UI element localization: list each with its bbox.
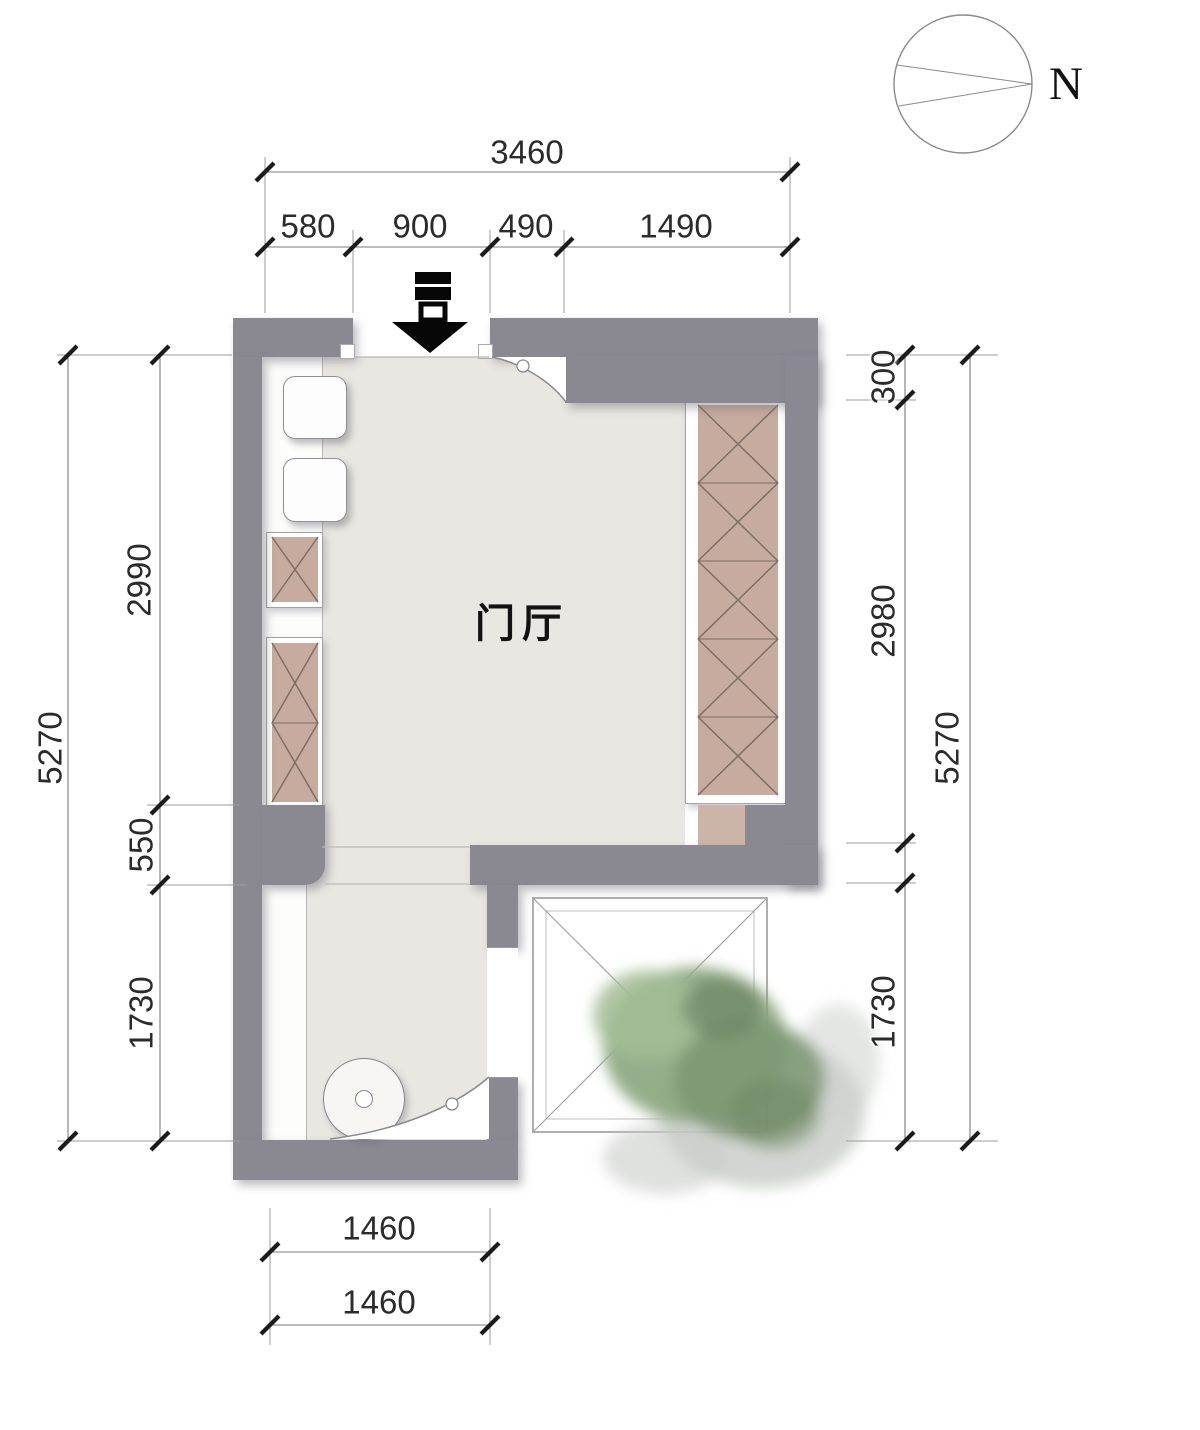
wall-stub-left-mid <box>262 805 325 885</box>
left-cabinet-small <box>272 537 318 602</box>
corridor-door-opening <box>487 947 518 1078</box>
wall-bottom <box>233 1140 518 1180</box>
left-counter-band-lower <box>262 885 307 1140</box>
entrance-jamb-right <box>478 344 493 359</box>
dim-top-seg-2: 900 <box>392 210 447 243</box>
wall-mid-horizontal <box>470 845 818 885</box>
appliance-bottom <box>283 458 347 522</box>
dim-left-seg-2: 550 <box>125 817 158 872</box>
right-wardrobe <box>698 405 778 795</box>
wall-right <box>785 357 818 885</box>
dim-right-seg-3: 1730 <box>867 975 900 1048</box>
compass-icon <box>894 15 1032 153</box>
dim-left-seg-3: 1730 <box>125 976 158 1049</box>
dim-bottom-outer: 1460 <box>342 1212 415 1245</box>
dim-right-seg-2: 2980 <box>867 584 900 657</box>
dim-left-overall: 5270 <box>34 711 67 784</box>
dim-right-overall: 5270 <box>931 711 964 784</box>
wall-corridor-right-upper <box>487 885 518 947</box>
round-table-center <box>355 1090 373 1108</box>
floor-plan: 门厅 N 3460 580 900 490 1490 5270 2990 550… <box>0 0 1200 1430</box>
lightwell <box>533 898 767 1132</box>
tree <box>593 967 880 1194</box>
dim-top-total: 3460 <box>490 136 563 169</box>
dim-top-seg-1: 580 <box>280 210 335 243</box>
dim-top-seg-3: 490 <box>498 210 553 243</box>
wall-top-bulkhead <box>565 355 818 403</box>
entrance-arrow-icon <box>392 272 468 353</box>
dim-top-seg-4: 1490 <box>639 210 712 243</box>
wall-corridor-right-lower <box>487 1078 518 1140</box>
room-name: 门厅 <box>475 591 569 649</box>
wall-block-right-base <box>745 805 785 845</box>
wall-left <box>233 357 262 1140</box>
dim-right-seg-1: 300 <box>867 349 900 404</box>
left-cabinet-tall <box>272 643 318 802</box>
north-letter: N <box>1049 57 1083 111</box>
right-wardrobe-base <box>698 805 745 845</box>
dim-bottom-inner: 1460 <box>342 1286 415 1319</box>
entrance-jamb-left <box>340 344 355 359</box>
dim-left-seg-1: 2990 <box>123 543 156 616</box>
wall-top-left <box>233 318 353 357</box>
appliance-top <box>283 376 347 439</box>
wall-top-right <box>490 318 818 357</box>
